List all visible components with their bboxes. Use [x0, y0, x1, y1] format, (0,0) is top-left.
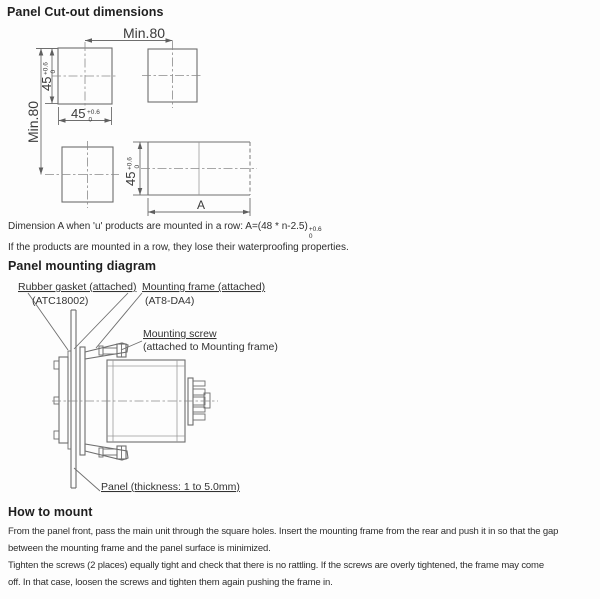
- dim-45-tol-zero: 0: [134, 165, 141, 169]
- heading-panel-cutout: Panel Cut-out dimensions: [7, 5, 164, 19]
- dim-45-tol-plus: +0.6: [87, 109, 100, 116]
- dim-45-vertical-sq1: 45 +0.6 0: [39, 49, 58, 104]
- mounting-frame: [80, 343, 128, 460]
- dim-a-label: A: [197, 198, 205, 212]
- how-to-mount-text: From the panel front, pass the main unit…: [8, 523, 558, 591]
- cutout-square-top-right: [142, 41, 203, 108]
- datasheet-page: Panel Cut-out dimensions: [0, 0, 600, 599]
- mounting-screw-bottom: [99, 446, 126, 459]
- formula-tolerance-lower: 0: [309, 234, 322, 241]
- dim-45-tol-plus: +0.6: [127, 157, 134, 170]
- how-to-mount-line: From the panel front, pass the main unit…: [8, 523, 558, 540]
- dim-min80-top-label: Min.80: [123, 26, 165, 41]
- how-to-mount-line: off. In that case, loosen the screws and…: [8, 574, 558, 591]
- dim-45-horizontal-sq1: 45 +0.6 0: [59, 106, 112, 125]
- leader-lines: [28, 293, 142, 491]
- label-mounting-frame: Mounting frame (attached): [142, 281, 265, 293]
- dim-45-label: 45: [123, 172, 138, 186]
- dim-min80-horizontal: Min.80: [85, 26, 173, 43]
- label-mounting-screw: Mounting screw: [143, 328, 217, 340]
- dim-a: A: [148, 198, 250, 216]
- cutout-square-bottom-left: [45, 141, 119, 208]
- cutout-row-rectangle: [141, 142, 257, 195]
- cutout-note-line1: Dimension A when 'u' products are mounte…: [8, 220, 349, 241]
- heading-panel-mounting: Panel mounting diagram: [8, 259, 156, 273]
- label-rubber-gasket-part: (ATC18002): [32, 295, 88, 307]
- how-to-mount-line: Tighten the screws (2 places) equally ti…: [8, 557, 558, 574]
- cutout-note-formula: Dimension A when 'u' products are mounte…: [8, 221, 308, 232]
- cutout-dimensions-diagram: Min.80 Min.80 45 +0.6 0: [0, 26, 600, 226]
- panel-cross-section: [71, 310, 76, 488]
- formula-tolerance: +0.60: [309, 227, 322, 241]
- dim-45-label: 45: [39, 77, 54, 91]
- cutout-note-line2: If the products are mounted in a row, th…: [8, 241, 349, 255]
- dim-45-tol-zero: 0: [89, 117, 93, 124]
- dim-45-vertical-row: 45 +0.6 0: [123, 142, 148, 195]
- cutout-notes: Dimension A when 'u' products are mounte…: [8, 220, 349, 254]
- label-mounting-screw-note: (attached to Mounting frame): [143, 341, 278, 353]
- how-to-mount-line: between the mounting frame and the panel…: [8, 540, 558, 557]
- label-rubber-gasket: Rubber gasket (attached): [18, 281, 136, 293]
- dim-45-label: 45: [71, 106, 85, 121]
- label-mounting-frame-part: (AT8-DA4): [145, 295, 194, 307]
- dim-min80-vertical: Min.80: [25, 49, 58, 175]
- dim-45-tol-plus: +0.6: [43, 62, 50, 75]
- panel-mounting-diagram: Rubber gasket (attached) (ATC18002) Moun…: [0, 240, 600, 500]
- main-unit-body: [107, 360, 185, 442]
- label-panel-thickness: Panel (thickness: 1 to 5.0mm): [101, 481, 240, 493]
- front-bezel: [54, 357, 68, 443]
- dim-45-tol-zero: 0: [50, 70, 57, 74]
- rubber-gasket: [68, 351, 71, 449]
- cutout-square-top-left: [52, 42, 118, 110]
- heading-how-to-mount: How to mount: [8, 505, 93, 519]
- mounting-screw-top: [99, 344, 126, 357]
- terminal-pins: [188, 378, 210, 425]
- dim-min80-left-label: Min.80: [25, 101, 41, 143]
